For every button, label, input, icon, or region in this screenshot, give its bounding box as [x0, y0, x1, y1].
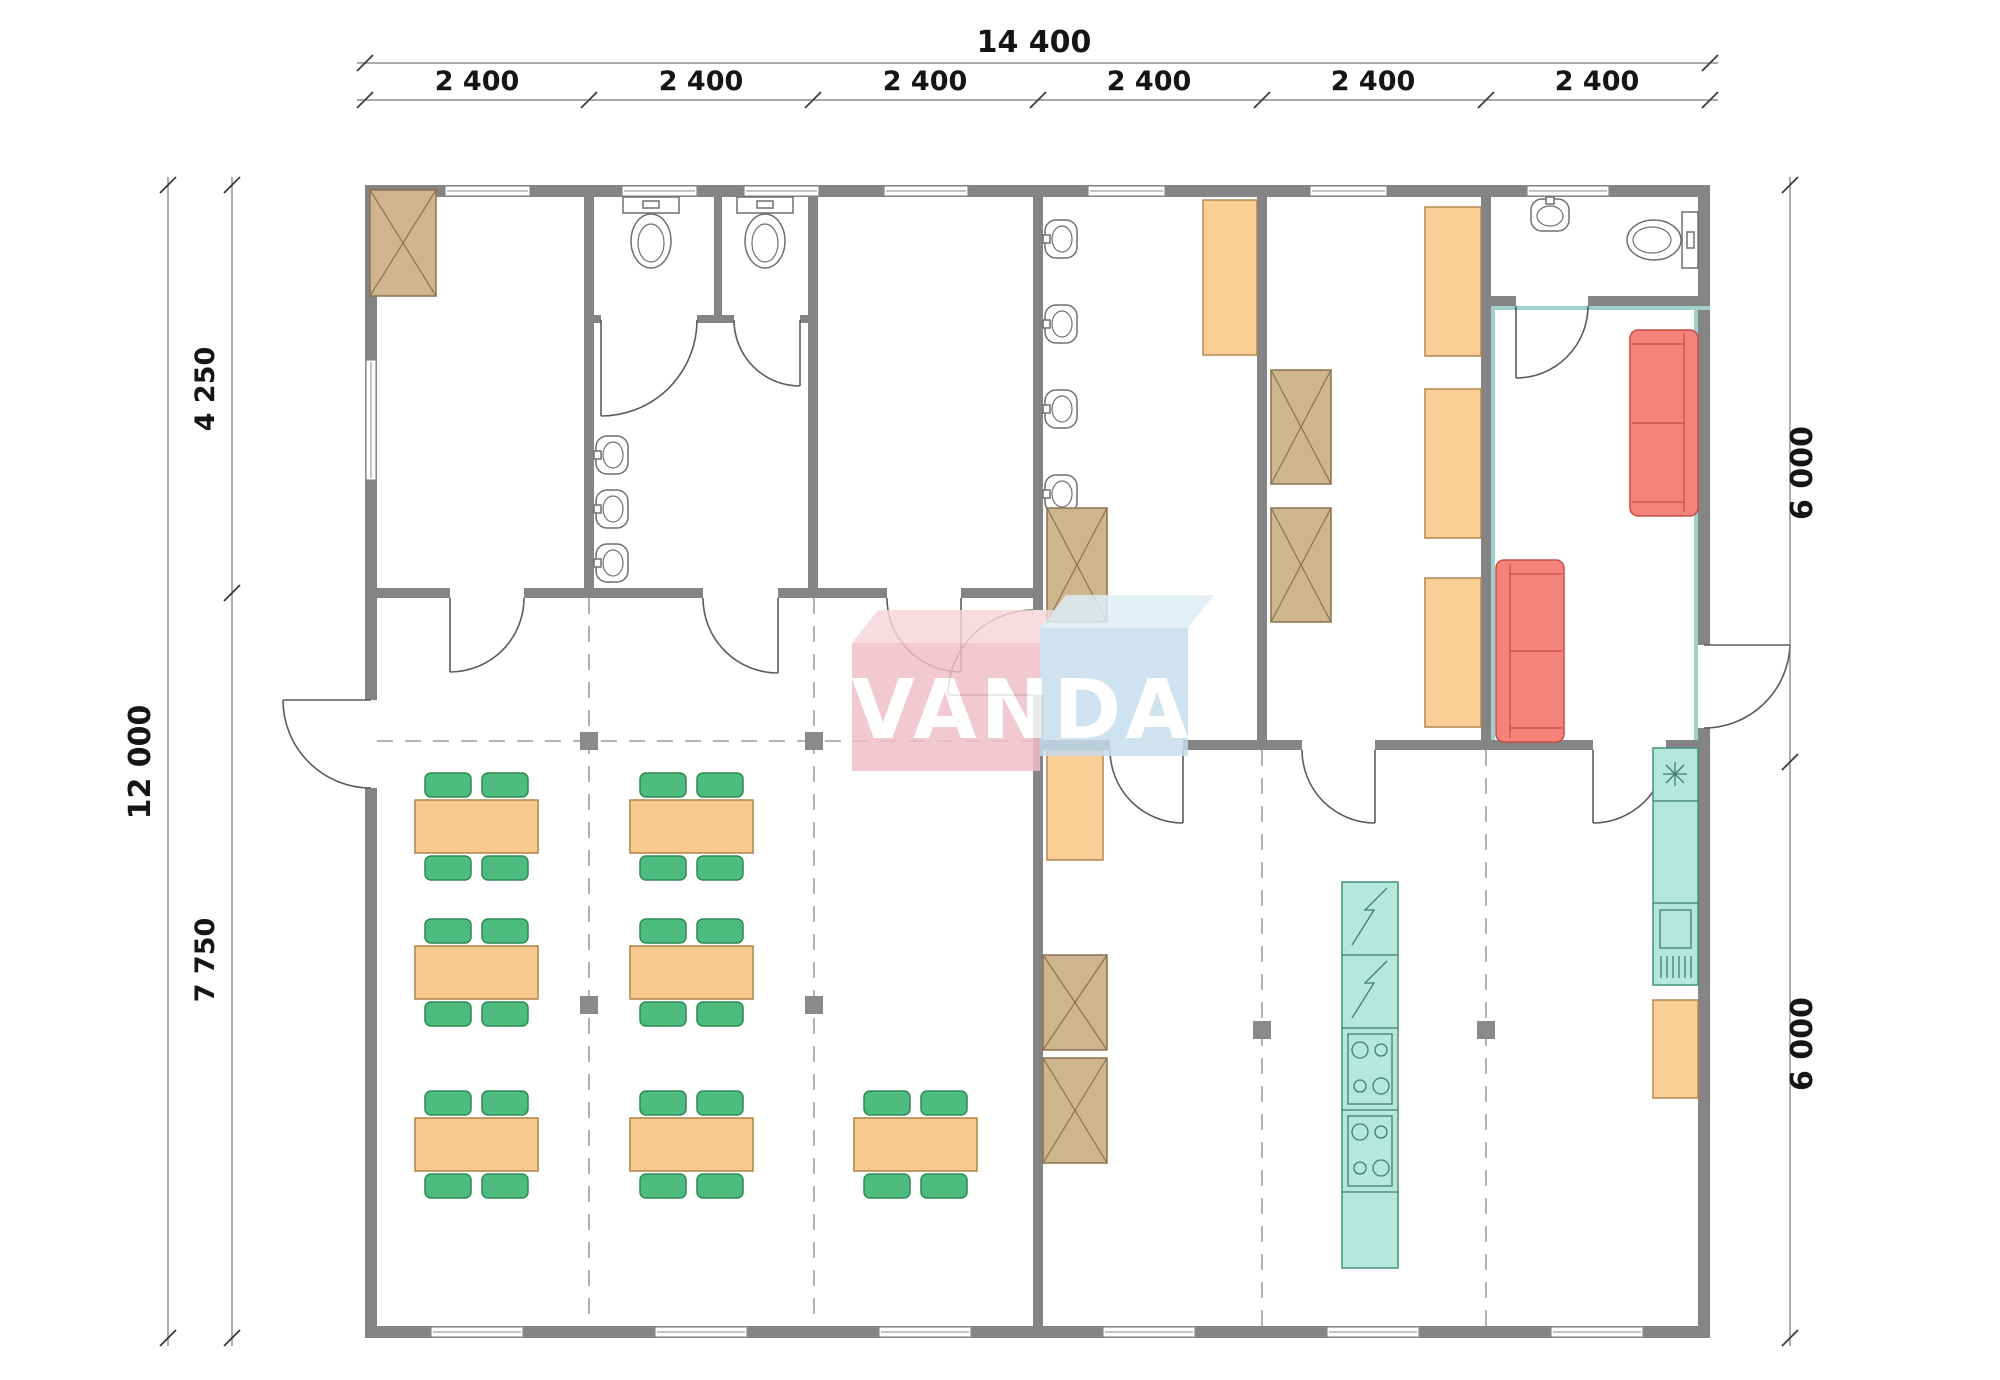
dim-segment: 2 400: [1331, 66, 1416, 97]
dim-segment: 2 400: [1107, 66, 1192, 97]
watermark-text: VANDA: [851, 663, 1193, 758]
dim-right-segment: 6 000: [1785, 997, 1820, 1091]
washbasin-icon: [1531, 197, 1569, 231]
watermark-pink-top: [852, 610, 1066, 643]
cabinet: [1203, 200, 1257, 355]
wardrobe: [1043, 1058, 1107, 1163]
kitchen-counter: [1653, 748, 1698, 985]
dim-top-total: 14 400: [977, 25, 1092, 60]
cabinet: [1653, 1000, 1698, 1098]
wardrobe: [1271, 508, 1331, 622]
dim-segment: 2 400: [435, 66, 520, 97]
cabinet: [1047, 750, 1103, 860]
floor-plan-page: 14 400 2 400 2 400 2 400 2 400 2 400 2 4…: [0, 0, 2000, 1380]
bed: [1425, 389, 1481, 538]
sofa: [1630, 330, 1698, 516]
wardrobe: [1043, 955, 1107, 1050]
dim-left-total: 12 000: [123, 705, 158, 820]
dim-segment: 2 400: [1555, 66, 1640, 97]
washbasin-icon: [594, 490, 628, 528]
dim-left-segment: 4 250: [190, 347, 221, 432]
washbasin-icon: [1043, 220, 1077, 258]
dim-left-segment: 7 750: [190, 918, 221, 1003]
left-entrance-door: [283, 700, 371, 788]
dim-segment: 2 400: [883, 66, 968, 97]
dim-right-segment: 6 000: [1785, 426, 1820, 520]
washbasin-icon: [1043, 390, 1077, 428]
floor-plan-drawing: 14 400 2 400 2 400 2 400 2 400 2 400 2 4…: [0, 0, 2000, 1380]
sofa: [1496, 560, 1564, 742]
washbasin-icon: [594, 544, 628, 582]
washbasin-icon: [1043, 305, 1077, 343]
vanda-watermark: VANDA: [851, 595, 1214, 771]
bed: [1425, 578, 1481, 727]
wardrobe: [1271, 370, 1331, 484]
wardrobe: [370, 190, 436, 296]
watermark-blue-top: [1040, 595, 1214, 628]
bed: [1425, 207, 1481, 356]
kitchen-island: [1342, 882, 1398, 1268]
dim-segment: 2 400: [659, 66, 744, 97]
washbasin-icon: [594, 436, 628, 474]
sink-unit-icon: [1663, 762, 1687, 786]
right-entrance-door: [1704, 645, 1790, 728]
